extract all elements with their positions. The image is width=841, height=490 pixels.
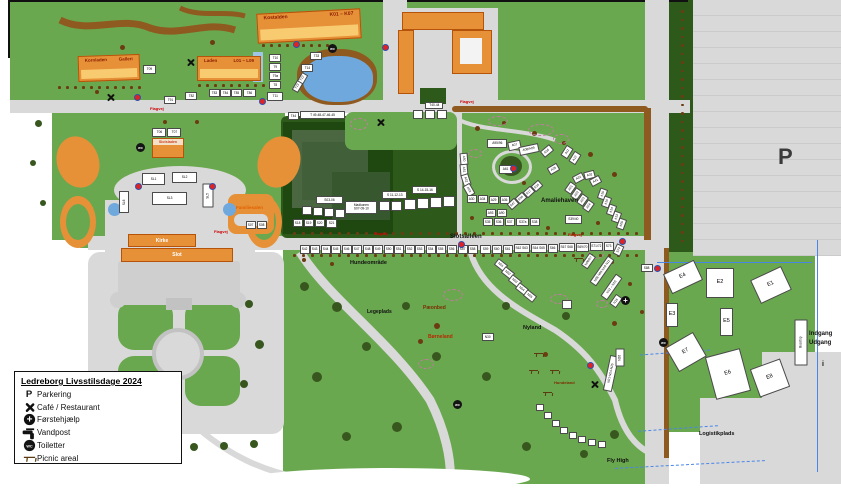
map-stand-s36: S36 (494, 218, 504, 226)
tree-dot (347, 232, 350, 235)
vandpost-icon (209, 183, 216, 190)
building-kornladen: Kornladen Galleri (78, 54, 141, 82)
map-label-nyland: Nyland (523, 326, 541, 332)
stand-label: T13 (295, 83, 301, 89)
stand-label: A16 (544, 148, 551, 154)
map-stand (313, 207, 323, 216)
map-label-legeplads: Legeplads (367, 310, 392, 315)
map-stand-t8: T8 (269, 81, 281, 89)
stand-label: E1 (767, 281, 776, 289)
map-stand-s42: S42 (300, 245, 310, 254)
map-label-fly-high: Fly High (607, 459, 629, 465)
legend-title: Ledreborg Livsstilsdage 2024 (21, 376, 175, 386)
map-label-i: i (822, 361, 824, 368)
tree-dot (347, 254, 350, 257)
tree-dot (311, 232, 314, 235)
map-stand-busstop: Busstop (795, 320, 808, 366)
flower-bed (528, 124, 554, 136)
map-stand-t44: T44 (288, 112, 299, 120)
map-stand-s61: S61 (503, 245, 513, 254)
tree-dot (626, 254, 629, 257)
legend-item-parking: PParkering (21, 388, 175, 401)
building-label: Galleri (119, 56, 133, 61)
building-slotsladen: Slotsladen (152, 138, 184, 158)
map-stand-t40-44: T40-44 (425, 102, 443, 109)
cafe-icon (106, 93, 115, 102)
building-slot: Slot (121, 248, 233, 262)
tree-green (432, 352, 441, 361)
tree-green (502, 302, 510, 310)
map-label-flagvej: Flagvej (374, 232, 388, 236)
map-stand-s69-70: S69/70 (576, 243, 589, 252)
flower-bed (488, 116, 508, 126)
map-stand-s45: S45 (331, 245, 341, 254)
flower-bed (418, 359, 434, 369)
map-stand-t91: T91 (164, 96, 176, 104)
tree-dot (518, 232, 521, 235)
map-stand-s38: S38 (530, 218, 540, 226)
stand-label: S08 (259, 223, 265, 226)
stand-label: A32 (575, 175, 582, 181)
stand-label: S59 (483, 248, 489, 251)
map-stand-a90: A90 (497, 209, 507, 217)
flower-bed (468, 149, 482, 158)
tree-brown (612, 321, 617, 326)
tree-dot (473, 254, 476, 257)
tree-dot (590, 232, 593, 235)
map-stand-a29: A29 (489, 196, 499, 204)
vandpost-icon (458, 241, 465, 248)
map-label-logistikplads: Logistikplads (699, 432, 734, 438)
stand-label: S38 (532, 220, 538, 223)
tree-dot (527, 232, 530, 235)
map-label-amaliehaven: Amaliehaven (541, 198, 578, 204)
stand-label: T91 (167, 98, 173, 101)
stand-label: S61 (505, 248, 511, 251)
tree-dot (554, 232, 557, 235)
tree-dot (681, 112, 684, 115)
stand-label: S39/40 (568, 218, 578, 221)
tree-dot (608, 232, 611, 235)
map-stand-s55: S55 (436, 245, 446, 254)
tree-green (332, 302, 342, 312)
tree-dot (74, 86, 77, 89)
stand-label: S51 (396, 248, 402, 251)
map-stand (598, 441, 606, 448)
stand-label: N16 (613, 298, 619, 305)
tree-dot (214, 84, 217, 87)
building-label: Slot (172, 252, 181, 258)
tree-brown (612, 172, 617, 177)
map-stand-s18: S18 (293, 219, 303, 227)
tree-dot (392, 232, 395, 235)
tree-dot (599, 254, 602, 257)
tree-dot (329, 232, 332, 235)
tree-dot (270, 44, 273, 47)
legend-item-cafe: Café / Restaurant (21, 401, 175, 414)
stand-label: S88 (644, 266, 650, 269)
map-stand-s35: S35 (483, 218, 493, 226)
map-stand-n26: N26 (616, 349, 625, 367)
building-label: Slotsladen (159, 140, 177, 144)
tree-dot (527, 254, 530, 257)
tree-dot (410, 232, 413, 235)
map-stand (379, 201, 390, 211)
tree-brown (470, 216, 474, 220)
map-stand-s48: S48 (363, 245, 373, 254)
map-stand (430, 197, 442, 208)
vandpost-icon (135, 183, 142, 190)
tree-dot (446, 232, 449, 235)
map-label-slotsall-en: Slotsalléen (450, 234, 482, 240)
stand-label: T09 (147, 68, 153, 71)
tree-dot (286, 44, 289, 47)
tree-brown (95, 90, 99, 94)
map-stand-s73: S73 (604, 242, 614, 251)
tree-green (562, 312, 570, 320)
stand-label: A93 (488, 211, 494, 214)
stand-label: T8 (273, 83, 277, 86)
farm-bldg-left (398, 30, 414, 94)
stand-label: T11 (272, 95, 277, 98)
stand-label: S54 (428, 248, 434, 251)
map-stand-s59: S59 (480, 245, 491, 254)
toilet-icon: WC (136, 143, 145, 152)
tree-brown (475, 126, 480, 131)
map-stand-sl6: SL6 (119, 191, 129, 213)
building-label: Kirke (156, 238, 169, 244)
tree-dot (246, 84, 249, 87)
legend-item-label: Toiletter (37, 441, 65, 450)
tree-dot (238, 84, 241, 87)
map-stand-s-11-12-13: S 11-12-13 (382, 191, 407, 199)
parking-icon: P (21, 389, 37, 400)
legend-item-picnic: Picnic areal (21, 452, 175, 465)
stand-label: A41 (592, 178, 599, 184)
stand-label: T14 (304, 66, 310, 69)
map-label-familiesalen: Familiesalen (236, 206, 263, 211)
tree-dot (681, 61, 684, 64)
stand-label: A36 (502, 198, 508, 201)
stand-label: S47 (354, 248, 360, 251)
tree-brown (546, 226, 550, 230)
tree-green (40, 200, 46, 206)
tree-dot (681, 180, 684, 183)
tree-brown (210, 40, 215, 45)
stand-label: S44 (323, 248, 329, 251)
stand-label: S64 S65 (533, 247, 545, 250)
tree-green (402, 302, 410, 310)
stand-label: S74 (616, 247, 621, 254)
tree-dot (383, 254, 386, 257)
stand-label: S52 (407, 248, 413, 251)
stand-label: S58 (470, 248, 476, 251)
tree-dot (482, 232, 485, 235)
map-stand-madkonen-s07-09-10: MadkonenS07-09-10 (345, 201, 377, 214)
stand-label: T9 (273, 65, 277, 68)
tree-dot (563, 232, 566, 235)
parterre-sw-inner (66, 204, 90, 240)
map-label-p: P (778, 146, 793, 168)
map-stand-t84: T84 (220, 89, 231, 97)
tree-dot (392, 254, 395, 257)
tap-icon (21, 428, 37, 438)
map-label-p-onbed: Pæonbed (423, 306, 446, 311)
picnic-icon (21, 455, 37, 461)
tree-dot (302, 254, 305, 257)
tree-dot (554, 254, 557, 257)
legend-item-label: Picnic areal (37, 454, 78, 463)
tree-dot (681, 19, 684, 22)
stand-label: S56 (449, 248, 455, 251)
stand-label: T12 (300, 75, 306, 81)
building-laden: Laden L01 – L09 (197, 56, 261, 81)
stand-label: S37 (507, 220, 513, 223)
tree-dot (338, 254, 341, 257)
tree-dot (293, 254, 296, 257)
stand-label: A90 (499, 211, 505, 214)
stand-label: SL6 (122, 199, 125, 205)
stand-label: S67 S68 (561, 246, 573, 249)
stand-label: T06 (156, 131, 162, 134)
tree-dot (681, 231, 684, 234)
stand-label: S36 (496, 220, 502, 223)
stand-label: S03-06 (324, 198, 334, 201)
map-stand-t82: T82 (185, 92, 197, 100)
tree-dot (681, 70, 684, 73)
vandpost-icon (654, 265, 661, 272)
tree-dot (681, 214, 684, 217)
map-stand (425, 110, 435, 119)
tree-green (255, 340, 264, 349)
building-band (81, 68, 137, 79)
map-stand-t9: T9 (269, 63, 281, 71)
map-page: { "legend": { "title": "Ledreborg Livsst… (0, 0, 841, 484)
tree-dot (681, 121, 684, 124)
tree-dot (428, 232, 431, 235)
tree-dot (356, 232, 359, 235)
tree-dot (500, 254, 503, 257)
map-stand (302, 206, 312, 215)
tree-dot (338, 232, 341, 235)
building-label: L01 – L09 (233, 58, 254, 63)
map-stand-t83: T83 (209, 89, 220, 97)
tree-green (362, 342, 371, 351)
map-stand-t9a: T9a (269, 72, 281, 80)
stand-label: S50 (386, 248, 392, 251)
farm-bldg-main-court (460, 38, 482, 64)
stand-label: N26 (618, 355, 621, 361)
legend-item-firstaid: +Førstehjælp (21, 414, 175, 427)
tree-dot (365, 254, 368, 257)
map-label-hundeomr-de: Hundeområde (350, 261, 387, 267)
tree-dot (419, 254, 422, 257)
tree-dot (681, 240, 684, 243)
legend-item-tap: Vandpost (21, 426, 175, 439)
legend-item-label: Parkering (37, 390, 71, 399)
tree-green (240, 380, 248, 388)
map-stand-s21: S21 (326, 219, 337, 228)
building-label: K01 – K07 (329, 11, 353, 18)
vandpost-icon (259, 98, 266, 105)
stand-label: S57 (460, 248, 466, 251)
map-stand-a34: A34 (478, 195, 488, 203)
tree-dot (681, 155, 684, 158)
stand-label: S18 (295, 221, 301, 224)
tree-dot (138, 86, 141, 89)
tree-brown (195, 120, 199, 124)
building-band (260, 25, 358, 41)
tree-green (610, 430, 619, 439)
stand-label: S60 (494, 248, 500, 251)
stand-label: E8 (766, 374, 774, 382)
tree-brown (120, 45, 125, 50)
vandpost-icon (510, 165, 517, 172)
tree-dot (401, 232, 404, 235)
stand-label: S53 (417, 248, 423, 251)
tree-dot (293, 232, 296, 235)
tree-dot (681, 138, 684, 141)
legend-item-label: Café / Restaurant (37, 403, 100, 412)
map-stand-t14: T14 (301, 64, 313, 72)
stand-label: E6 (724, 370, 732, 377)
amaliehaven-hedge-right (644, 108, 651, 240)
stand-label: A51 (462, 167, 466, 173)
tree-dot (262, 44, 265, 47)
stand-label: A53 (466, 187, 472, 194)
tree-dot (310, 44, 313, 47)
tree-dot (500, 232, 503, 235)
tree-dot (428, 254, 431, 257)
legend-item-label: Vandpost (37, 428, 70, 437)
stand-label: E4 (679, 273, 688, 281)
vandpost-icon (293, 41, 300, 48)
stand-label: A07 (511, 143, 517, 147)
tree-dot (681, 223, 684, 226)
map-stand-t11: T11 (267, 92, 283, 101)
map-stand-s53: S53 (415, 245, 425, 254)
tree-brown (522, 181, 526, 185)
stand-label: MadkonenS07-09-10 (354, 204, 369, 211)
toilet-icon: WC (21, 441, 37, 450)
stand-label: S19 (306, 221, 312, 224)
stand-label: SL3 (167, 197, 173, 200)
map-stand-s19: S19 (304, 219, 314, 227)
stand-label: T9a (272, 74, 278, 77)
tree-dot (491, 232, 494, 235)
vandpost-icon (619, 238, 626, 245)
map-stand-s43: S43 (310, 245, 320, 254)
map-stand-s08: S08 (257, 221, 267, 229)
blue-line-horizontal (657, 262, 812, 263)
stand-label: N04 (519, 286, 526, 292)
map-stand-s47: S47 (352, 245, 362, 254)
tree-dot (681, 146, 684, 149)
stand-label: S49 (375, 248, 381, 251)
tree-dot (320, 232, 323, 235)
stand-label: A02 (586, 173, 592, 178)
map-stand-s46: S46 (342, 245, 352, 254)
toilet-icon: WC (453, 400, 462, 409)
map-stand-s51: S51 (394, 245, 404, 254)
tree-dot (356, 254, 359, 257)
stand-label: A34 (480, 197, 486, 200)
tree-dot (617, 232, 620, 235)
tree-dot (518, 254, 521, 257)
map-stand (404, 199, 416, 210)
tree-brown (640, 310, 644, 314)
tree-green (30, 160, 36, 166)
stand-label: S07 (248, 223, 254, 226)
tree-dot (681, 172, 684, 175)
tree-dot (545, 232, 548, 235)
stand-label: T82 (188, 94, 194, 97)
stand-label: A24 (585, 203, 591, 210)
map-stand (560, 427, 568, 434)
tree-dot (491, 254, 494, 257)
tree-brown (330, 262, 334, 266)
tree-green (245, 300, 253, 308)
tree-dot (58, 86, 61, 89)
stand-label: S62 S63 (516, 247, 528, 250)
flower-bed (443, 289, 463, 301)
tree-green (482, 372, 491, 381)
tree-green (35, 120, 42, 127)
map-label-flagvej: Flagvej (568, 233, 582, 237)
stand-label: N05 (527, 293, 534, 299)
tree-brown (588, 152, 593, 157)
castle-center-tower (166, 298, 192, 310)
map-stand (569, 432, 577, 439)
legend-rows: PParkeringCafé / Restaurant+FørstehjælpV… (21, 388, 175, 465)
map-label-hundeland: Hundeland (554, 381, 575, 385)
stand-label: T86 (247, 91, 253, 94)
stand-label: A08/A09 (523, 147, 536, 153)
stand-label: T 49-48-47-46-45 (310, 113, 335, 116)
map-stand-s20: S20 (315, 219, 325, 227)
map-stand-t86: T86 (243, 89, 256, 97)
tree-brown (628, 282, 632, 286)
picnic-icon (543, 390, 552, 396)
vandpost-icon (134, 94, 141, 101)
tree-dot (635, 232, 638, 235)
tree-dot (98, 86, 101, 89)
map-label-b-rneland: Børneland (428, 335, 453, 340)
tree-dot (320, 254, 323, 257)
building-label: Laden (204, 58, 217, 63)
tree-green (342, 432, 351, 441)
map-stand-s-14-15-16: S 14-15-16 (412, 186, 437, 194)
map-stand (437, 110, 447, 119)
stand-label: E7 (682, 348, 691, 356)
tree-dot (222, 84, 225, 87)
firstaid-icon: + (621, 296, 630, 305)
picnic-icon (534, 351, 543, 357)
tree-dot (681, 27, 684, 30)
stand-label: T33 (313, 54, 319, 57)
pond (303, 56, 373, 102)
bottom-white-curve (250, 468, 530, 490)
tree-dot (482, 254, 485, 257)
tree-dot (681, 95, 684, 98)
stand-label: S21 (329, 222, 335, 225)
amaliehaven-hedge-top (452, 106, 648, 112)
stand-label: Busstop (799, 337, 802, 349)
map-stand-s07: S07 (246, 221, 256, 229)
stand-label: S20 (317, 221, 323, 224)
map-stand (578, 436, 586, 443)
map-stand-s54: S54 (426, 245, 436, 254)
